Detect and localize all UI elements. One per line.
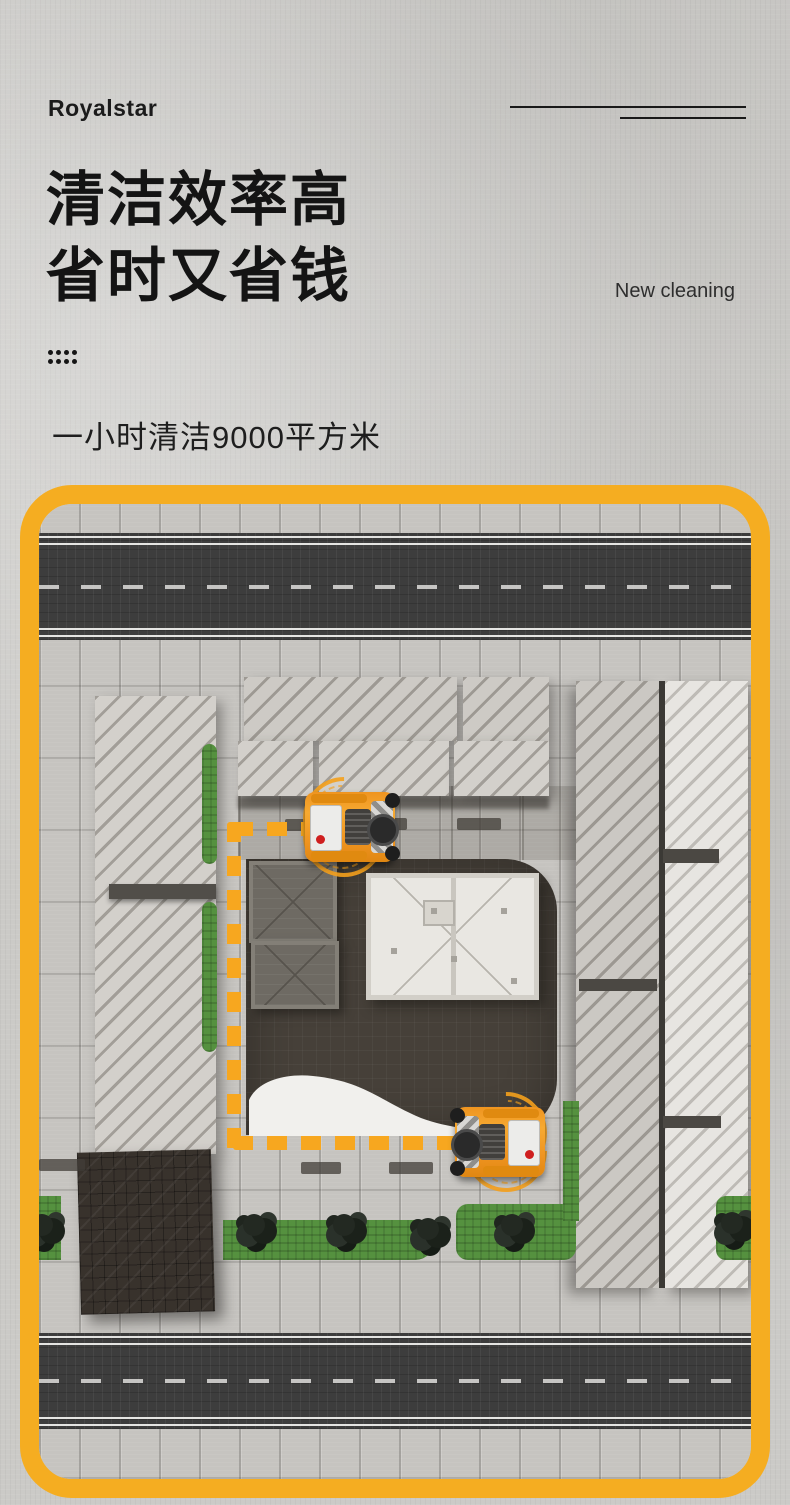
tree-icon bbox=[417, 1218, 439, 1240]
dot-icon bbox=[56, 350, 61, 355]
feature-subtitle: 一小时清洁9000平方米 bbox=[52, 412, 381, 457]
sweeper-wheel bbox=[450, 1108, 465, 1123]
green-strip bbox=[202, 744, 217, 864]
dot-icon bbox=[56, 359, 61, 364]
container-hatch bbox=[423, 900, 455, 926]
tree-icon bbox=[333, 1214, 355, 1236]
sweeper-engine bbox=[479, 1124, 505, 1160]
sweeper-red-button bbox=[525, 1150, 534, 1159]
brand-logo: Royalstar bbox=[48, 95, 157, 122]
sweeper-machine-icon bbox=[449, 1100, 553, 1184]
sweeper-wheel bbox=[385, 793, 400, 808]
tree-icon bbox=[721, 1212, 743, 1234]
sweeper-steering-wheel bbox=[451, 1129, 483, 1161]
sweeper-bumper bbox=[311, 851, 367, 860]
pavement-mark bbox=[457, 818, 501, 830]
header-rule-bottom bbox=[620, 117, 746, 119]
page-title-line2: 省时又省钱 bbox=[46, 239, 351, 315]
sweeper-bumper bbox=[311, 794, 367, 803]
top-road bbox=[39, 533, 751, 640]
road-lane-dashes bbox=[39, 1379, 751, 1383]
dot-icon bbox=[64, 359, 69, 364]
road-lane-dashes bbox=[39, 585, 751, 589]
sweeper-body bbox=[305, 792, 395, 862]
green-strip bbox=[563, 1101, 579, 1221]
sweeper-steering-wheel bbox=[367, 814, 399, 846]
building-east-gap bbox=[659, 681, 665, 1288]
pavement-mark bbox=[301, 1162, 341, 1174]
header-rule-top bbox=[510, 106, 746, 108]
dot-icon bbox=[64, 350, 69, 355]
dot-icon bbox=[48, 359, 53, 364]
building-east-ledge bbox=[663, 849, 719, 863]
green-strip bbox=[202, 902, 217, 1052]
road-edge-line bbox=[39, 1417, 751, 1426]
building-east-ledge bbox=[579, 979, 657, 991]
promo-page: Royalstar 清洁效率高 省时又省钱 New cleaning 一小时清洁… bbox=[0, 0, 790, 1505]
storage-crate bbox=[251, 941, 339, 1009]
page-title: 清洁效率高 省时又省钱 bbox=[46, 163, 351, 314]
building-block-north-e bbox=[454, 741, 549, 796]
tagline-text: New cleaning bbox=[615, 280, 735, 303]
road-edge-line bbox=[39, 628, 751, 637]
dot-icon bbox=[72, 359, 77, 364]
dot-icon bbox=[48, 350, 53, 355]
sweeper-hood bbox=[508, 1120, 540, 1166]
pavement-mark bbox=[39, 1159, 85, 1171]
sweeper-bumper bbox=[483, 1166, 539, 1175]
tree-icon bbox=[501, 1214, 523, 1236]
sweeper-red-button bbox=[316, 835, 325, 844]
sweeper-wheel bbox=[385, 846, 400, 861]
cleaning-route-path-icon bbox=[227, 822, 241, 1150]
container-bolts bbox=[391, 948, 397, 954]
sweeper-bumper bbox=[483, 1109, 539, 1118]
cleaning-route-path-icon bbox=[233, 1136, 465, 1150]
building-east-ledge bbox=[663, 1116, 721, 1128]
sweeper-body bbox=[455, 1107, 545, 1177]
white-container bbox=[366, 873, 539, 1000]
road-edge-line bbox=[39, 536, 751, 545]
sweeper-machine-icon bbox=[297, 785, 401, 869]
road-edge-line bbox=[39, 1336, 751, 1345]
storage-crate bbox=[249, 861, 337, 943]
building-block-north-b bbox=[463, 677, 549, 741]
container-divider bbox=[451, 878, 456, 995]
sweeper-wheel bbox=[450, 1161, 465, 1176]
page-title-line1: 清洁效率高 bbox=[46, 163, 351, 239]
building-west-tower bbox=[95, 696, 216, 1154]
scene-frame bbox=[20, 485, 770, 1498]
bottom-road bbox=[39, 1333, 751, 1429]
building-dark-glass bbox=[77, 1149, 215, 1314]
building-west-ledge bbox=[109, 884, 216, 899]
dot-icon bbox=[72, 350, 77, 355]
pavement-mark bbox=[389, 1162, 433, 1174]
tree-icon bbox=[243, 1214, 265, 1236]
sweeper-hood bbox=[310, 805, 342, 851]
building-block-north-a bbox=[244, 677, 457, 741]
aerial-scene bbox=[39, 504, 751, 1479]
grid-dots-icon bbox=[48, 350, 77, 364]
